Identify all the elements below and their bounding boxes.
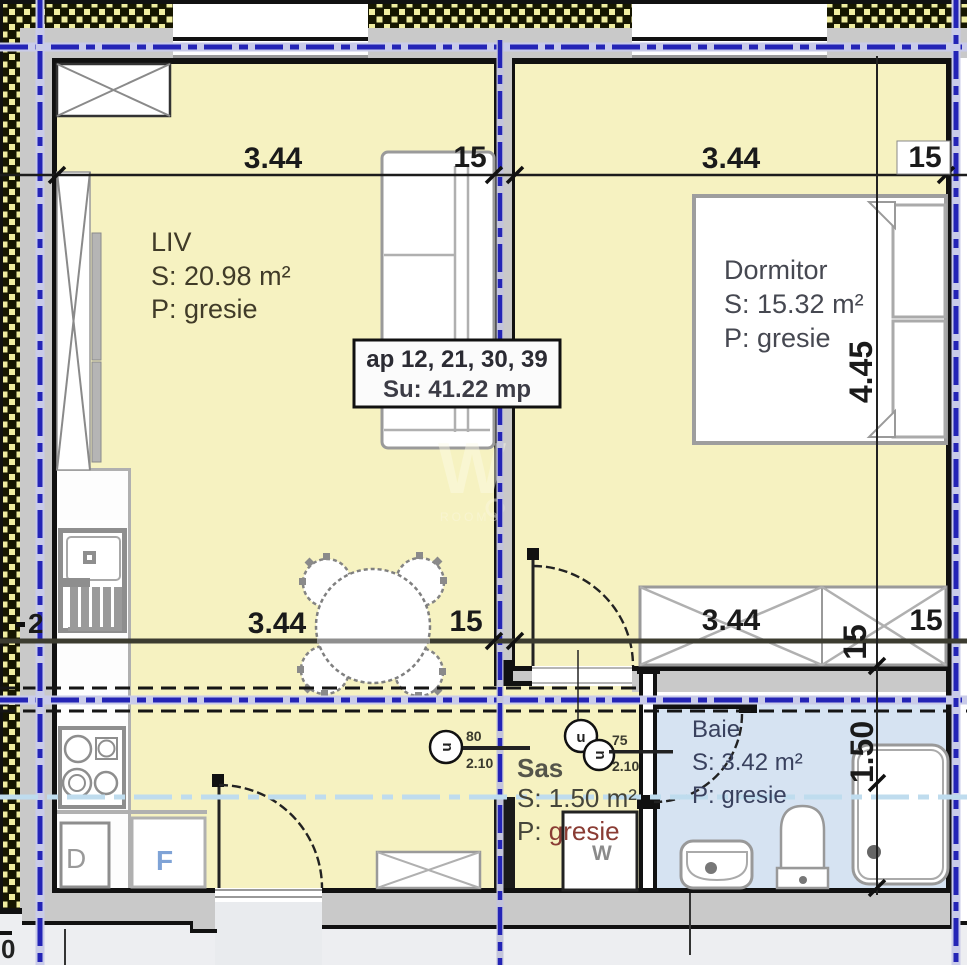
svg-text:3.44: 3.44 xyxy=(702,142,761,175)
svg-text:u: u xyxy=(438,742,455,751)
svg-text:S: 15.32 m²: S: 15.32 m² xyxy=(724,289,864,319)
svg-text:F: F xyxy=(156,845,173,876)
svg-text:ap 12, 21, 30, 39: ap 12, 21, 30, 39 xyxy=(366,346,547,373)
svg-text:3.44: 3.44 xyxy=(244,142,303,175)
svg-text:Sas: Sas xyxy=(517,753,563,783)
svg-text:Baie: Baie xyxy=(692,716,740,743)
svg-text:1.50: 1.50 xyxy=(844,721,880,783)
svg-text:75: 75 xyxy=(612,732,628,748)
svg-text:P: gresie: P: gresie xyxy=(517,816,620,846)
svg-text:Dormitor: Dormitor xyxy=(724,255,828,285)
svg-text:P: gresie: P: gresie xyxy=(724,323,831,353)
svg-text:P: gresie: P: gresie xyxy=(151,294,258,324)
svg-text:u: u xyxy=(576,729,585,746)
svg-text:LIV: LIV xyxy=(151,227,192,257)
svg-text:S: 3.42 m²: S: 3.42 m² xyxy=(692,749,803,776)
svg-text:15: 15 xyxy=(453,141,486,174)
svg-text:2.10: 2.10 xyxy=(612,758,639,774)
svg-text:3.44: 3.44 xyxy=(702,604,761,637)
svg-text:3.44: 3.44 xyxy=(248,607,307,640)
svg-text:2.10: 2.10 xyxy=(466,755,493,771)
svg-text:15: 15 xyxy=(909,604,942,637)
svg-text:u: u xyxy=(591,750,608,759)
svg-text:15: 15 xyxy=(908,141,941,174)
svg-text:15: 15 xyxy=(449,605,482,638)
svg-text:Su: 41.22 mp: Su: 41.22 mp xyxy=(383,376,531,403)
svg-text:D: D xyxy=(66,843,86,874)
svg-text:S: 20.98 m²: S: 20.98 m² xyxy=(151,261,291,291)
svg-text:15: 15 xyxy=(837,624,873,660)
svg-text:80: 80 xyxy=(466,728,482,744)
svg-text:2: 2 xyxy=(28,608,44,639)
svg-text:W: W xyxy=(438,429,506,509)
svg-text:4.45: 4.45 xyxy=(843,341,879,403)
svg-text:ROOMS: ROOMS xyxy=(440,510,500,524)
svg-text:S: 1.50 m²: S: 1.50 m² xyxy=(517,783,637,813)
svg-text:0: 0 xyxy=(1,934,15,964)
svg-text:P: gresie: P: gresie xyxy=(692,782,787,809)
